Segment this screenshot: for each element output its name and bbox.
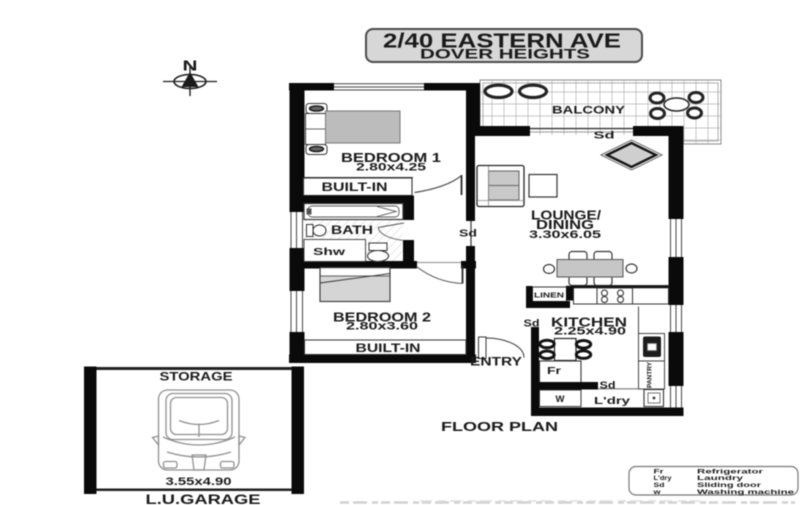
svg-text:Sd: Sd bbox=[600, 381, 616, 392]
svg-text:Fr: Fr bbox=[547, 365, 561, 377]
svg-text:Laundry: Laundry bbox=[697, 475, 744, 482]
svg-text:Sd: Sd bbox=[594, 130, 615, 142]
svg-text:BUILT-IN: BUILT-IN bbox=[322, 182, 388, 194]
svg-text:BATH: BATH bbox=[331, 225, 373, 237]
svg-text:FLOOR PLAN: FLOOR PLAN bbox=[441, 419, 558, 434]
svg-text:L.U.GARAGE: L.U.GARAGE bbox=[146, 492, 261, 505]
svg-text:2.80x3.60: 2.80x3.60 bbox=[346, 321, 418, 333]
svg-text:2.25x4.90: 2.25x4.90 bbox=[554, 326, 626, 338]
svg-text:Sliding door: Sliding door bbox=[697, 482, 762, 489]
svg-text:Sd: Sd bbox=[524, 318, 540, 330]
svg-text:3.30x6.05: 3.30x6.05 bbox=[529, 229, 601, 241]
svg-text:W: W bbox=[556, 394, 565, 405]
svg-text:STORAGE: STORAGE bbox=[160, 372, 233, 384]
svg-text:BUILT-IN: BUILT-IN bbox=[356, 343, 421, 355]
svg-text:Washing machine: Washing machine bbox=[697, 489, 795, 496]
svg-text:3.55x4.90: 3.55x4.90 bbox=[166, 476, 232, 488]
svg-text:Shw: Shw bbox=[313, 246, 346, 258]
svg-text:PANTRY: PANTRY bbox=[647, 361, 654, 388]
svg-text:L'dry: L'dry bbox=[654, 475, 672, 482]
svg-text:Sd: Sd bbox=[654, 482, 665, 489]
svg-text:ENTRY: ENTRY bbox=[470, 357, 522, 369]
svg-text:LINEN: LINEN bbox=[534, 291, 564, 300]
svg-text:2.80x4.25: 2.80x4.25 bbox=[356, 162, 426, 174]
svg-text:BALCONY: BALCONY bbox=[552, 105, 626, 117]
svg-text:Sd: Sd bbox=[459, 229, 477, 240]
svg-text:L'dry: L'dry bbox=[594, 395, 630, 407]
svg-text:w: w bbox=[652, 489, 662, 496]
svg-text:DOVER HEIGHTS: DOVER HEIGHTS bbox=[420, 46, 590, 62]
